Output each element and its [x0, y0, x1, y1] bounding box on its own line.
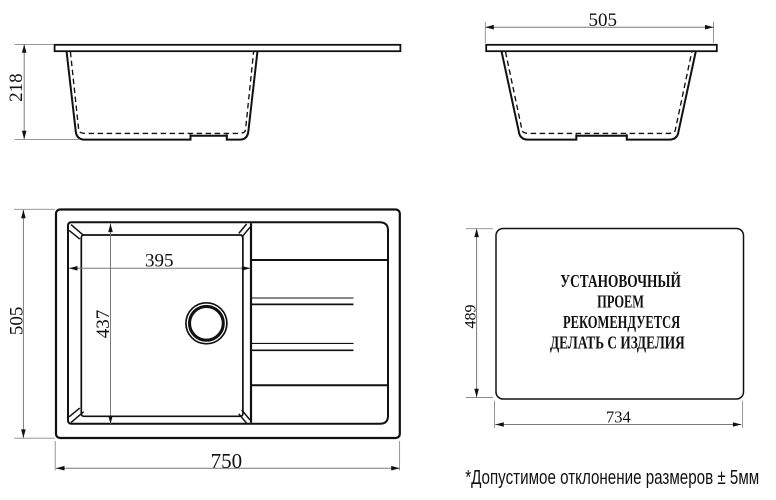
svg-text:750: 750: [211, 449, 243, 473]
svg-text:437: 437: [93, 310, 114, 339]
svg-text:ПРОЕМ: ПРОЕМ: [597, 291, 644, 311]
svg-text:*Допустимое отклонение размеро: *Допустимое отклонение размеров ± 5мм: [465, 467, 759, 489]
svg-text:489: 489: [463, 305, 480, 329]
svg-text:УСТАНОВОЧНЫЙ: УСТАНОВОЧНЫЙ: [560, 271, 681, 291]
svg-text:218: 218: [6, 73, 27, 102]
svg-text:505: 505: [6, 307, 27, 336]
svg-text:505: 505: [588, 10, 617, 31]
svg-text:ДЕЛАТЬ С ИЗДЕЛИЯ: ДЕЛАТЬ С ИЗДЕЛИЯ: [550, 332, 685, 352]
svg-text:РЕКОМЕНДУЕТСЯ: РЕКОМЕНДУЕТСЯ: [563, 312, 681, 332]
svg-text:395: 395: [145, 250, 174, 271]
svg-text:734: 734: [606, 407, 631, 426]
